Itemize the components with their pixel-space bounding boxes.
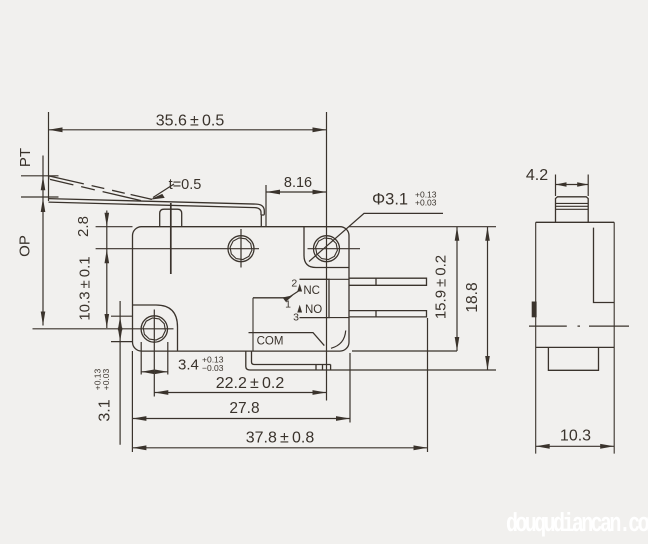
svg-text:18.8: 18.8 bbox=[464, 282, 481, 312]
svg-text:NC: NC bbox=[303, 285, 320, 297]
svg-text:PT: PT bbox=[17, 148, 34, 167]
svg-text:10.3 ± 0.1: 10.3 ± 0.1 bbox=[77, 256, 94, 320]
svg-text:1: 1 bbox=[285, 299, 291, 311]
svg-text:37.8 ± 0.8: 37.8 ± 0.8 bbox=[246, 429, 315, 446]
svg-text:22.2 ± 0.2: 22.2 ± 0.2 bbox=[216, 375, 285, 392]
svg-text:+0.03: +0.03 bbox=[415, 198, 437, 208]
svg-text:+0.03: +0.03 bbox=[101, 368, 111, 390]
svg-text:2: 2 bbox=[291, 277, 297, 289]
svg-text:4.2: 4.2 bbox=[526, 167, 548, 184]
svg-text:8.16: 8.16 bbox=[284, 175, 312, 191]
svg-text:15.9 ± 0.2: 15.9 ± 0.2 bbox=[433, 255, 450, 319]
svg-text:t=0.5: t=0.5 bbox=[169, 177, 202, 193]
svg-text:Φ3.1: Φ3.1 bbox=[372, 191, 408, 209]
svg-text:27.8: 27.8 bbox=[229, 400, 259, 417]
svg-text:COM: COM bbox=[257, 336, 284, 348]
svg-text:OP: OP bbox=[17, 235, 34, 257]
svg-text:NO: NO bbox=[305, 304, 322, 316]
svg-text:10.3: 10.3 bbox=[560, 428, 591, 445]
svg-text:2.8: 2.8 bbox=[75, 216, 92, 237]
svg-text:3: 3 bbox=[293, 312, 299, 324]
svg-text:35.6 ± 0.5: 35.6 ± 0.5 bbox=[156, 113, 225, 130]
svg-text:3.1: 3.1 bbox=[97, 399, 114, 421]
svg-text:3.4: 3.4 bbox=[178, 357, 199, 374]
svg-text:−0.03: −0.03 bbox=[202, 363, 224, 373]
